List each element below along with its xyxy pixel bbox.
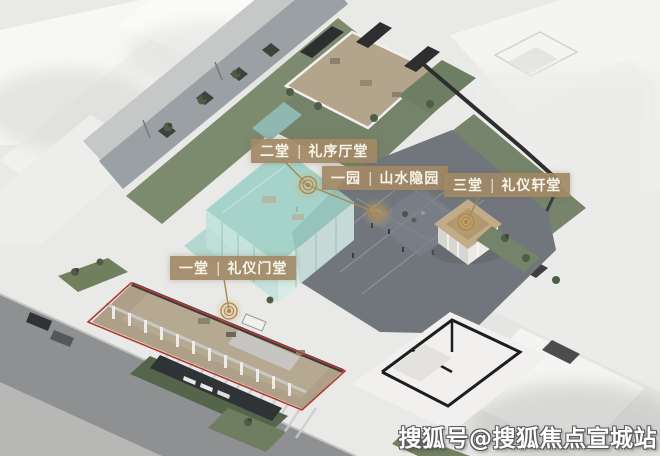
label-hall-1: 一堂 | 礼仪门堂 [170, 256, 296, 280]
label-hall-2: 二堂 | 礼序厅堂 [251, 139, 377, 163]
label-name: 山水隐园 [379, 168, 439, 188]
label-name: 礼仪轩堂 [501, 175, 561, 195]
label-number: 二堂 [260, 141, 290, 161]
hall3-target-marker [452, 208, 480, 236]
garden1-target-marker [361, 197, 393, 229]
label-divider: | [297, 143, 301, 160]
rendering-canvas: 二堂 | 礼序厅堂 一园 | 山水隐园 三堂 | 礼仪轩堂 一堂 | 礼仪门堂 … [0, 0, 660, 456]
sohu-watermark: 搜狐号@搜狐焦点宣城站 [399, 419, 658, 453]
label-hall-3: 三堂 | 礼仪轩堂 [444, 173, 570, 197]
label-number: 一堂 [179, 258, 209, 278]
label-name: 礼序厅堂 [308, 141, 368, 161]
label-divider: | [216, 260, 220, 277]
label-divider: | [490, 177, 494, 194]
label-number: 一园 [331, 168, 361, 188]
label-number: 三堂 [453, 175, 483, 195]
site-axonometric-rendering [0, 0, 660, 456]
hall2-target-marker [292, 169, 324, 201]
hall1-target-marker [214, 296, 244, 326]
label-name: 礼仪门堂 [227, 258, 287, 278]
label-garden-1: 一园 | 山水隐园 [322, 166, 448, 190]
label-divider: | [368, 170, 372, 187]
